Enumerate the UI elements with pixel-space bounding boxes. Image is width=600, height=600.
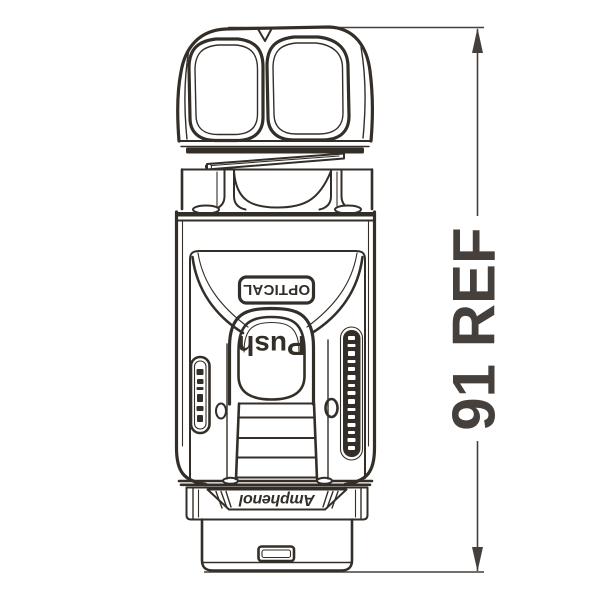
dimension-text: 91 REF bbox=[441, 227, 508, 430]
collar-post-left bbox=[213, 170, 225, 210]
key-tab bbox=[259, 547, 295, 562]
face-curve-right bbox=[312, 257, 363, 333]
brand-label: Amphenol bbox=[238, 491, 316, 508]
finger-hole-left bbox=[189, 39, 263, 141]
push-latch-label: Push bbox=[237, 330, 305, 361]
push-latch: Push bbox=[227, 309, 328, 480]
body-top-band bbox=[177, 212, 376, 217]
spring-washer bbox=[206, 154, 345, 171]
brand-band: Amphenol bbox=[187, 488, 368, 520]
cap-center-notch bbox=[258, 28, 272, 41]
marking-slot-left bbox=[191, 357, 210, 433]
marking-slot-right bbox=[341, 327, 363, 460]
arrow-down-icon bbox=[472, 547, 483, 572]
optical-badge-label: OPTICAL bbox=[243, 281, 310, 298]
connector-technical-drawing: 91 REF bbox=[0, 0, 600, 600]
cap-rim-band bbox=[186, 148, 364, 154]
plug-base bbox=[202, 520, 352, 571]
collar-bore bbox=[234, 171, 331, 208]
arrow-up-icon bbox=[472, 28, 483, 53]
coupling-collar bbox=[182, 170, 372, 214]
cap-boot bbox=[178, 27, 373, 154]
technical-drawing-canvas: 91 REF bbox=[0, 0, 600, 600]
latch-ridges bbox=[236, 404, 317, 480]
optical-badge: OPTICAL bbox=[240, 277, 314, 303]
pivot-oval-left bbox=[216, 404, 226, 419]
